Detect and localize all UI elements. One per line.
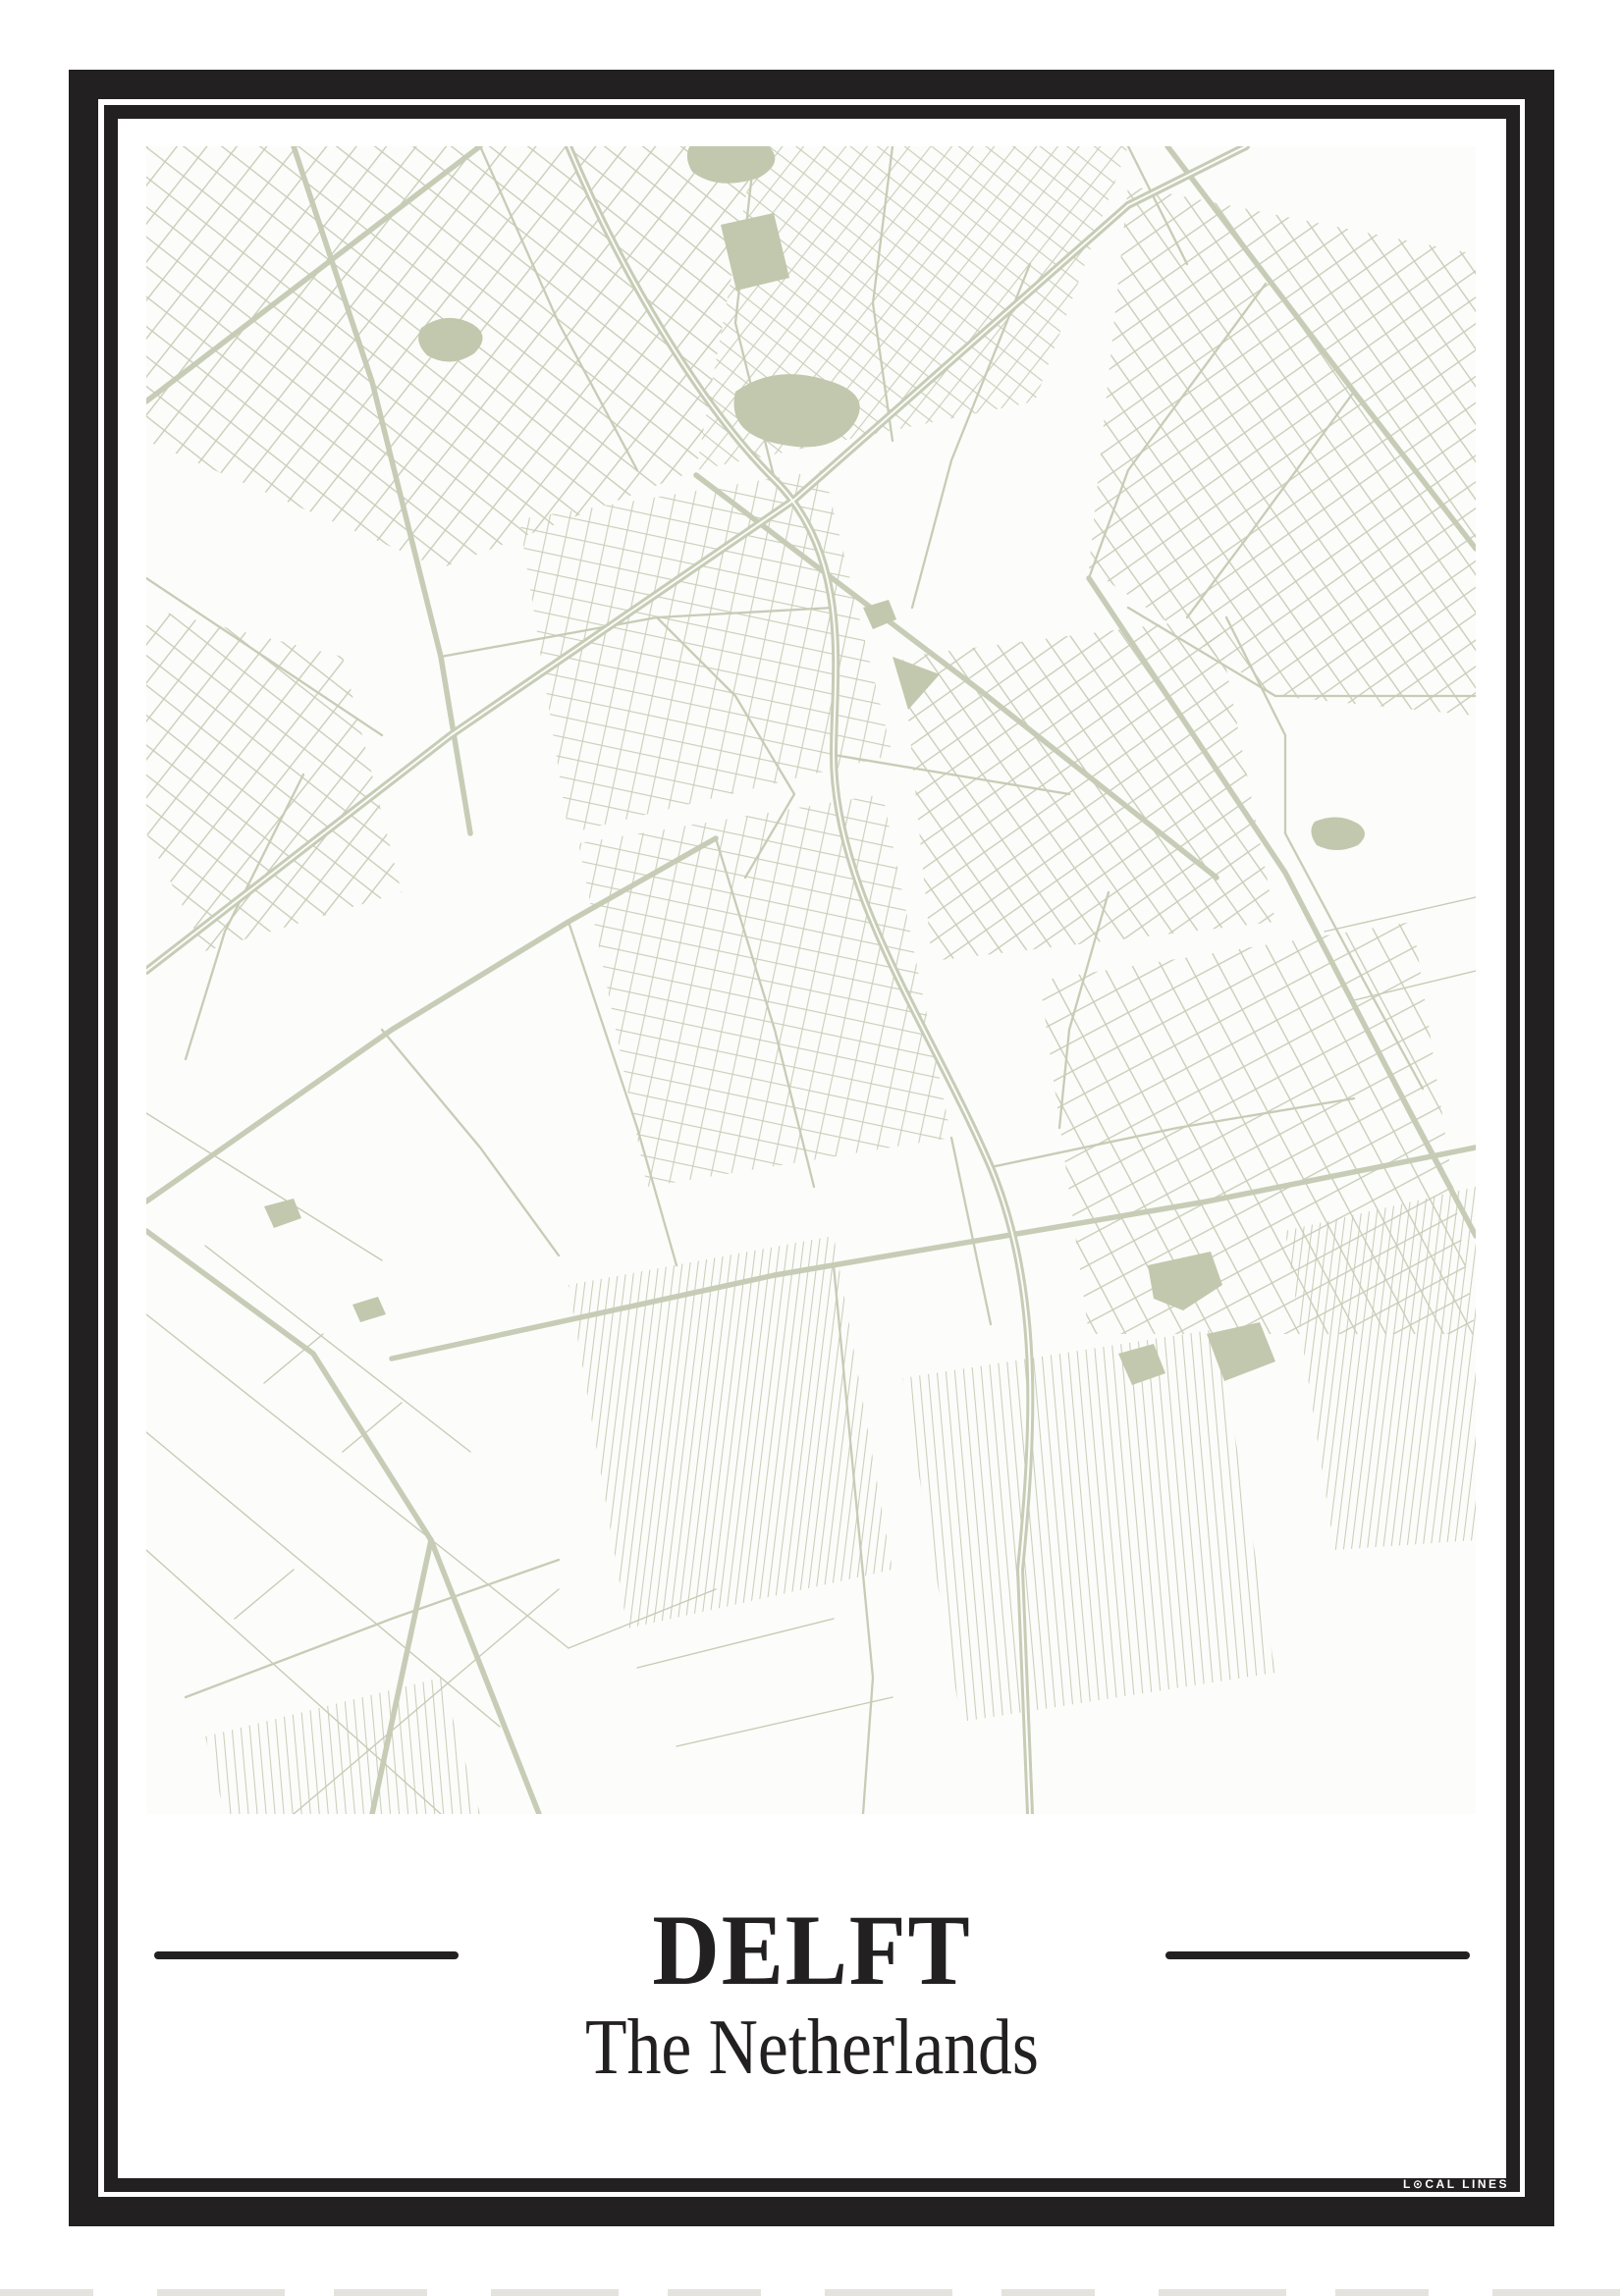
next-image-sliver <box>0 2289 1624 2296</box>
brand-logo: L⊙CAL LINES <box>1403 2176 1509 2192</box>
city-map <box>146 146 1476 1814</box>
poster-subtitle: The Netherlands <box>106 2008 1519 2107</box>
city-map-graphic <box>146 146 1476 1814</box>
poster-page: DELFT The Netherlands L⊙CAL LINES <box>0 0 1624 2296</box>
title-divider-right <box>1165 1951 1470 1959</box>
